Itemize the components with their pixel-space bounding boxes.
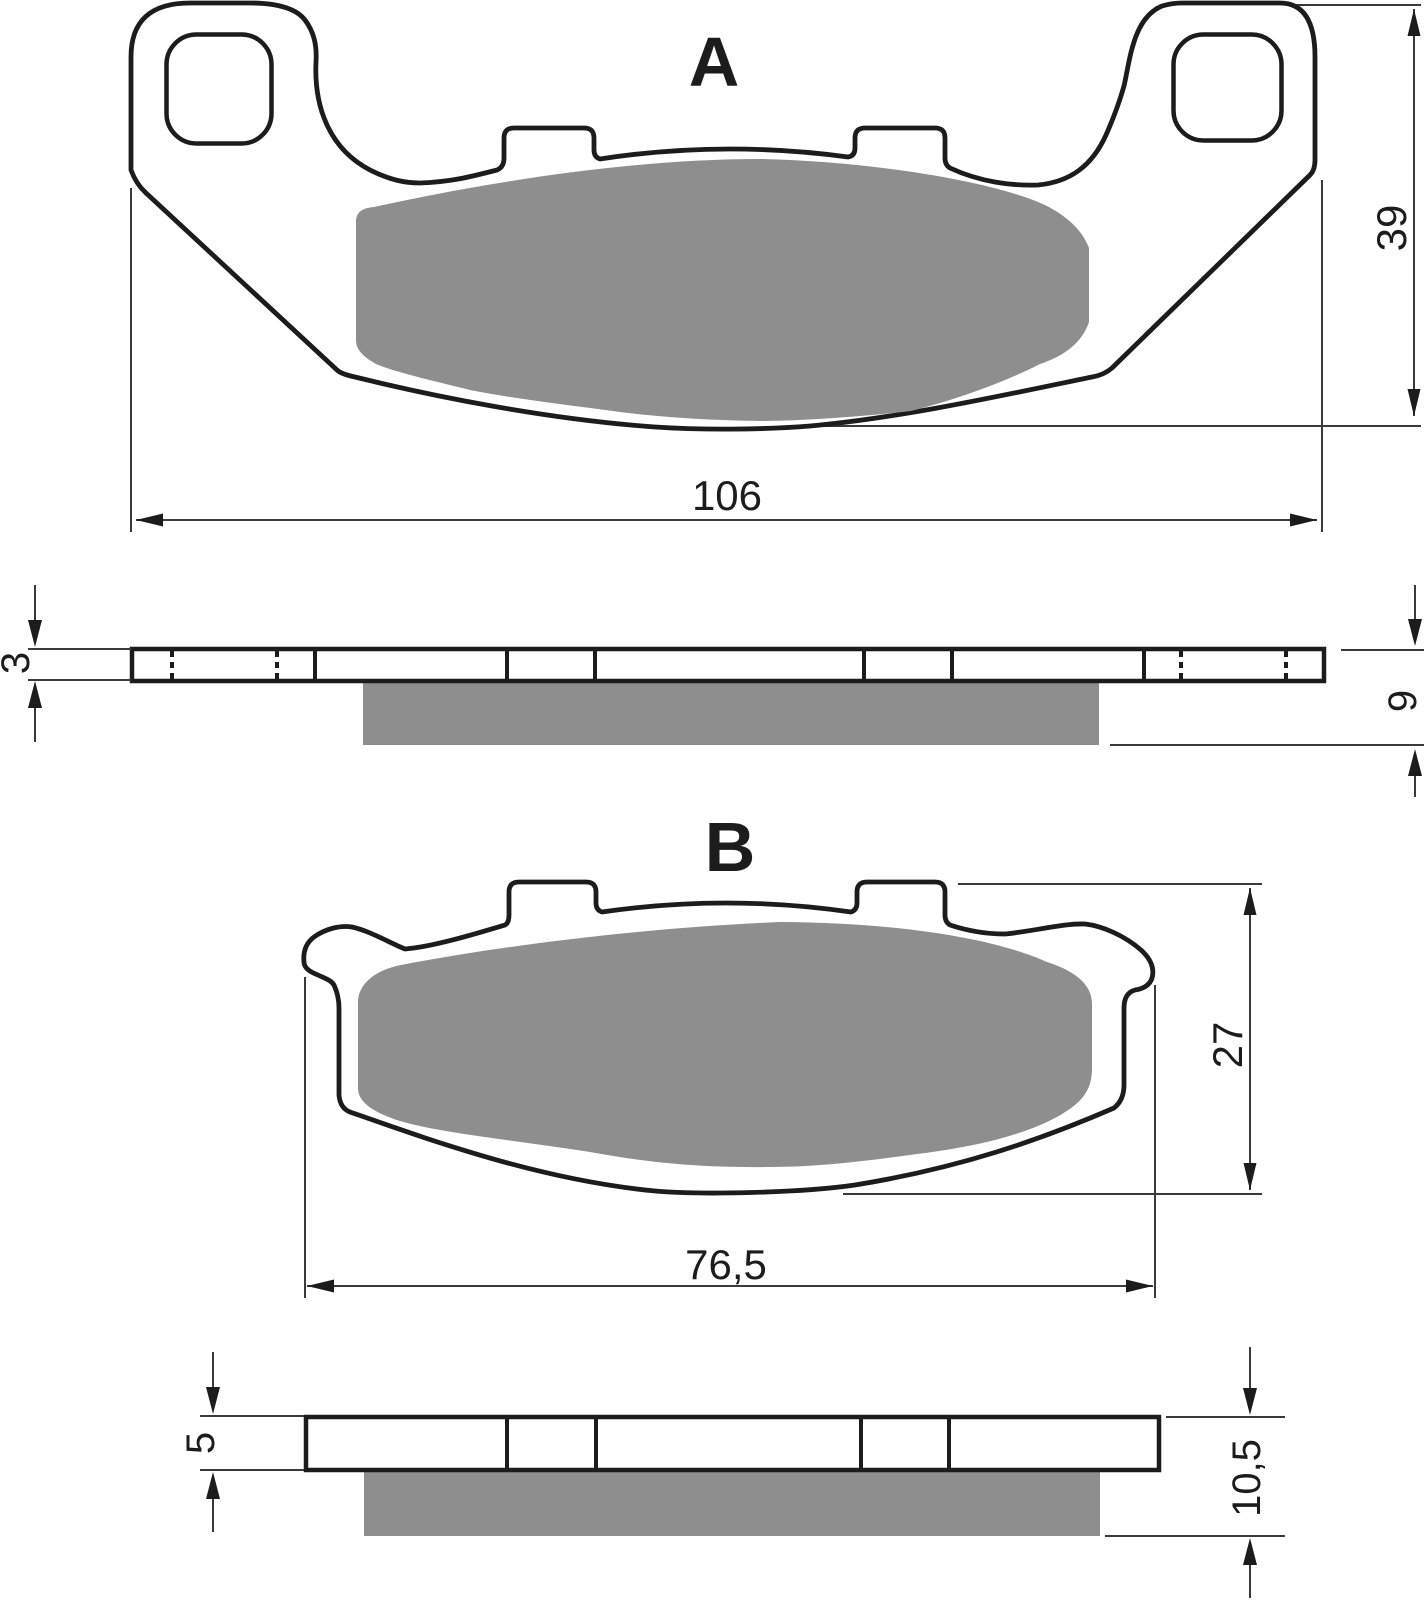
svg-text:A: A bbox=[689, 23, 740, 101]
svg-text:5: 5 bbox=[179, 1432, 223, 1454]
svg-text:10,5: 10,5 bbox=[1225, 1439, 1269, 1517]
svg-text:106: 106 bbox=[692, 472, 762, 519]
svg-text:B: B bbox=[705, 808, 756, 886]
svg-text:9: 9 bbox=[1381, 690, 1425, 712]
svg-text:76,5: 76,5 bbox=[685, 1241, 767, 1288]
svg-text:39: 39 bbox=[1368, 205, 1415, 252]
svg-text:27: 27 bbox=[1204, 1022, 1251, 1069]
svg-text:3: 3 bbox=[0, 652, 38, 674]
